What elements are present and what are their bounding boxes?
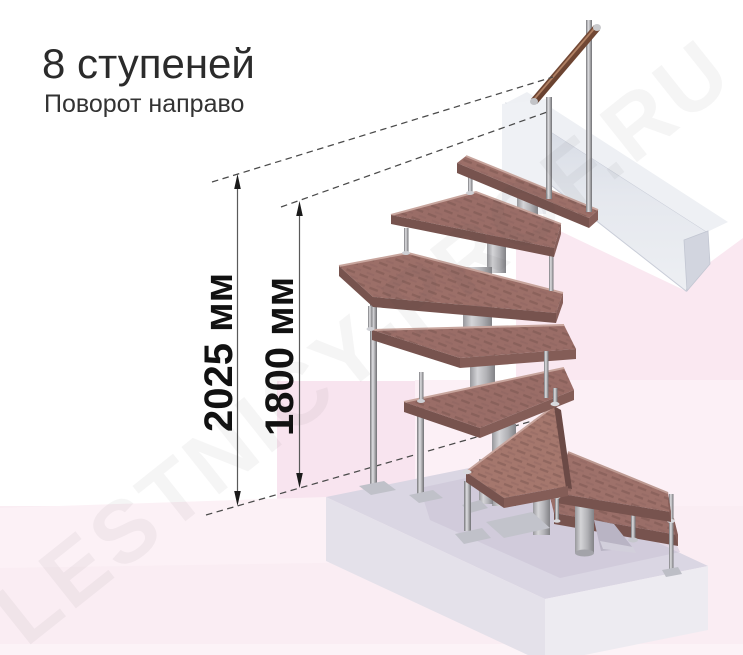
svg-text:Поворот направо: Поворот направо <box>44 90 244 118</box>
svg-text:8 ступеней: 8 ступеней <box>42 40 255 87</box>
